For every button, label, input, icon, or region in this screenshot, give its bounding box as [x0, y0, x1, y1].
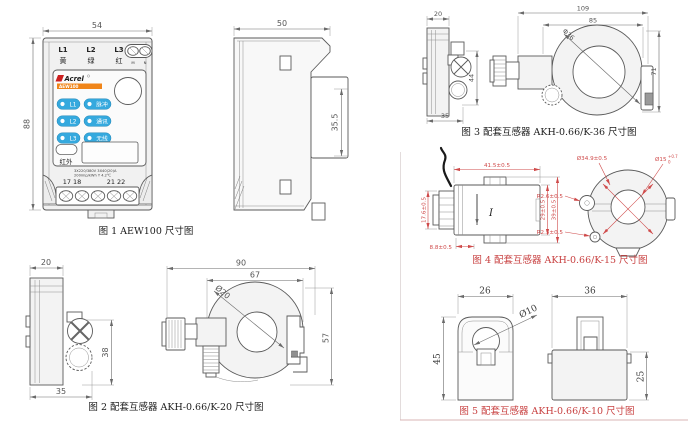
fig2-side-depth-dim: 35 [56, 387, 66, 396]
led-wireless-label: 无线 [96, 134, 108, 142]
led-dot [87, 136, 91, 140]
fig1-caption: 图 1 AEW100 尺寸图 [99, 225, 194, 237]
fig3-ct36-view: 20 44 35 109 85 Φ36 [423, 5, 661, 139]
ct-cable [441, 148, 451, 186]
fig4-radius-bottom-dim: R2.5±0.5 [537, 230, 564, 236]
fig4-ct15-view: I 41.5±0.5 17.6±0.5 8.8±0.5 29±0.5 39±0.… [422, 148, 679, 266]
led-l1-label: L1 [70, 102, 77, 108]
fig2-top-dim: 20 [41, 258, 51, 267]
side-rail-dim: 35.5 [331, 114, 340, 132]
fig2-height-dim: 57 [322, 333, 331, 343]
fig5-front-width-dim: 26 [479, 287, 491, 297]
fig3-side-height-dim: 44 [468, 74, 476, 82]
phase-color-green: 绿 [88, 56, 95, 65]
fig4-hole-dim: Ø15 [655, 156, 667, 163]
led-l2-label: L2 [70, 119, 77, 125]
aux-terminal-n: N [144, 60, 147, 65]
terminal-numbers-left: 17 18 [63, 178, 82, 186]
aux-terminal-m: M [131, 60, 134, 65]
fig2-body-dim: 67 [250, 271, 260, 280]
round-button [115, 78, 142, 105]
brand-text: Acrel [64, 75, 85, 83]
fig4-body-height-dim: 29±0.5 [541, 199, 547, 220]
fig2-ct20-view: 20 38 35 90 67 [26, 258, 334, 413]
fig4-caption: 图 4 配套互感器 AKH-0.66/K-15 尺寸图 [472, 254, 647, 266]
fig3-body-dim: 85 [589, 17, 597, 25]
fig3-overall-dim: 109 [577, 5, 589, 13]
display-window [82, 142, 138, 163]
fig3-caption: 图 3 配套互感器 AKH-0.66/K-36 尺寸图 [461, 126, 636, 138]
spec-line-1: 3X220/380V 3X40(20)A [74, 169, 117, 173]
led-comm-label: 通讯 [96, 117, 108, 125]
fig4-overall-height-dim: 39±0.5 [552, 199, 558, 220]
manual-page: 54 88 L1 L2 L3 黄 绿 红 M N Acrel AEW100 [0, 0, 688, 433]
fig4-hole-tol-upper: +0.7 [668, 154, 678, 159]
fig3-top-dim: 20 [434, 10, 442, 18]
terminal-strip [56, 187, 139, 205]
phase-color-red: 红 [116, 56, 123, 65]
fig4-hole-tol-lower: 0 [668, 160, 671, 165]
clip-foot [312, 203, 325, 220]
fig5-aperture-dim: Ø10 [517, 302, 539, 320]
fig4-outer-dim: Ø34.9±0.5 [577, 155, 608, 162]
fig5-side-height-dim: 25 [637, 371, 647, 383]
drawing-canvas: 54 88 L1 L2 L3 黄 绿 红 M N Acrel AEW100 [0, 0, 688, 433]
led-dot [60, 136, 64, 140]
fig3-height-dim: 71 [650, 67, 658, 75]
model-text: AEW100 [59, 84, 79, 89]
fig5-ct10-view: 26 45 Ø10 36 25 图 5 配套互感器 AKH-0.66/K-10 … [433, 287, 649, 418]
led-dot [87, 102, 91, 106]
side-width-dim: 50 [277, 19, 287, 28]
led-dot [60, 119, 64, 123]
fig2-side-height-dim: 38 [101, 347, 110, 357]
phase-l1-label: L1 [58, 46, 67, 54]
fig5-side-width-dim: 36 [584, 287, 596, 297]
fig1-width-dim: 54 [92, 21, 102, 30]
fig5-caption: 图 5 配套互感器 AKH-0.66/K-10 尺寸图 [459, 405, 634, 417]
phase-l2-label: L2 [86, 46, 95, 54]
fig2-caption: 图 2 配套互感器 AKH-0.66/K-20 尺寸图 [88, 401, 263, 413]
fig4-tab-dim: 8.8±0.5 [430, 245, 453, 251]
spec-line-2: 200imp/kWh Y 4.2℃ [74, 174, 111, 178]
phase-l3-label: L3 [114, 46, 123, 54]
bottom-tab [88, 210, 114, 218]
led-dot [60, 102, 64, 106]
fig1-height-dim: 88 [23, 119, 32, 129]
fig4-width-dim: 41.5±0.5 [484, 163, 510, 169]
fig1-front-view: 54 88 L1 L2 L3 黄 绿 红 M N Acrel AEW100 [23, 21, 194, 237]
led-dot [87, 119, 91, 123]
fig4-depth-dim: 17.6±0.5 [422, 197, 428, 223]
infrared-window [56, 145, 77, 155]
infrared-label: 红外 [60, 157, 74, 166]
fig3-side-depth-dim: 35 [441, 112, 449, 120]
led-l3-label: L3 [70, 136, 77, 142]
phase-color-yellow: 黄 [60, 56, 67, 65]
fig2-overall-dim: 90 [236, 259, 246, 268]
terminal-numbers-right: 21 22 [107, 178, 126, 186]
fig5-front-height-dim: 45 [433, 353, 443, 365]
fig4-radius-left-dim: R2.6±0.5 [537, 194, 564, 200]
fig1-side-view: 50 35.5 [234, 19, 348, 220]
led-pulse-label: 脉冲 [96, 100, 108, 108]
